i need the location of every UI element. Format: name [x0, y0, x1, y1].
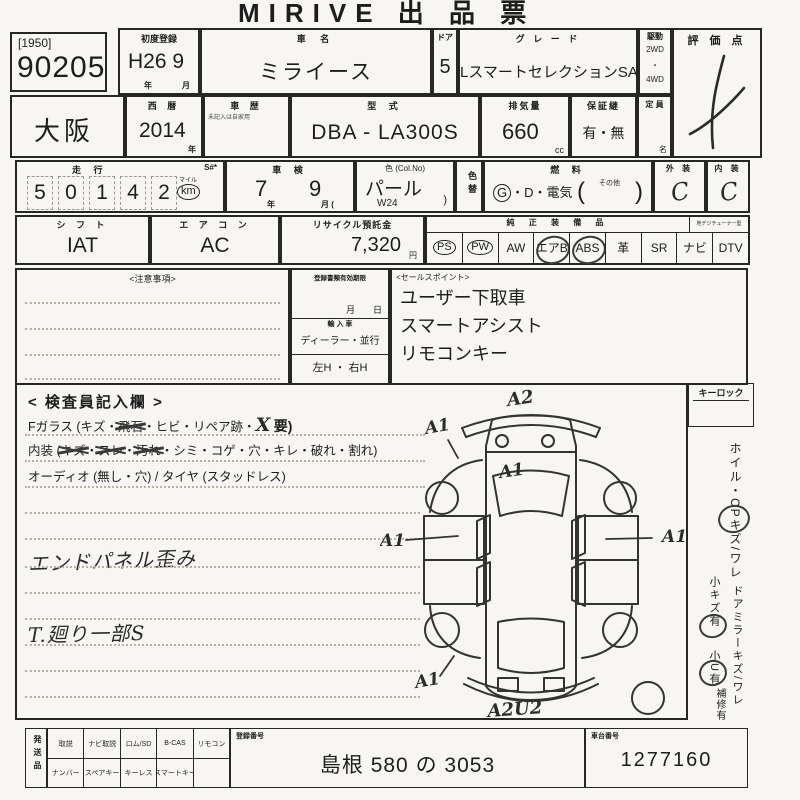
annotation-left: A1 [380, 531, 405, 551]
door-box: ドア 5 [432, 28, 458, 95]
exterior-box: 外 装 C [653, 160, 706, 213]
equipment-item-navi: ナビ [676, 232, 712, 263]
door-value: 5 [434, 56, 456, 79]
fuel-other-label: その他 [599, 178, 620, 188]
first-registration-unit-year: 年 [144, 80, 152, 91]
recycle-deposit-value: 7,320 [351, 234, 401, 257]
inspection-expiry-label: 車 検 [227, 163, 353, 176]
equipment-box: 純 正 装 備 品 地デジチューナー型 PS PW AW エアB ABS 革 S… [425, 215, 750, 265]
fuel-paren-close: ) [635, 178, 643, 206]
keylock-box: キーロック [688, 383, 754, 427]
inspector-dotline-4 [25, 512, 420, 514]
aircon-box: エ ア コ ン AC [150, 215, 280, 265]
lot-number: 90205 [17, 51, 105, 85]
history-note: 未記入は自家用 [208, 112, 250, 121]
chassis-number-box: 車台番号 1277160 [585, 728, 748, 788]
displacement-label: 排気量 [482, 99, 568, 112]
annotation-left-arrow [406, 536, 458, 540]
inspector-dotline-10 [25, 670, 420, 672]
dispatch-item-navi-manual: ナビ取説 [83, 729, 119, 758]
inspector-dotline-3 [25, 486, 425, 488]
year-label: 西 暦 [127, 99, 201, 112]
sales-point-1: ユーザー下取車 [400, 284, 526, 310]
registration-number-box: 登録番号 島根 580 の 3053 [230, 728, 585, 788]
documents-box: 登録書類有効期限 月 日 輸 入 車 ディーラー・並行 左H ・ 右H [290, 268, 390, 385]
first-registration-value: H26 9 [128, 50, 184, 74]
equipment-item-aw: AW [498, 232, 534, 263]
capacity-box: 定 員 名 [637, 95, 672, 158]
exterior-grade-handwritten: C [669, 177, 692, 208]
color-code: W24 [377, 198, 398, 209]
drive-option-2wd: 2WD [640, 45, 670, 54]
recycle-deposit-box: リサイクル預託金 7,320 円 [280, 215, 425, 265]
year-box: 西 暦 2014 年 [125, 95, 203, 158]
model-box: 型 式 DBA - LA300S [290, 95, 480, 158]
shift-value: IAT [17, 234, 148, 258]
equipment-item-abs: ABS [569, 232, 605, 263]
dispatch-item-number-plate: ナンバー [48, 758, 83, 787]
history-box: 車 歴 未記入は自家用 [203, 95, 290, 158]
mirror-text: ドアミラーキズ/ワレ [729, 585, 745, 707]
equipment-item-ps: PS [427, 232, 462, 263]
mileage-s-mark: S#* [204, 163, 217, 172]
inspector-dotline-5 [25, 538, 420, 540]
import-label: 輸 入 車 [292, 319, 388, 329]
recycle-deposit-label: リサイクル預託金 [282, 218, 423, 231]
inspection-expiry-month: 9 [309, 176, 321, 202]
inspector-dotline-7 [25, 592, 420, 594]
annotation-right: A1 [660, 527, 687, 547]
caution-line-4 [25, 378, 280, 380]
mileage-mile-label: マイル [179, 175, 197, 184]
interior-line: 内装 (キズ・スレ・汚れ・シミ・コゲ・穴・キレ・破れ・割れ) [28, 440, 377, 459]
mileage-label: 走 行 [72, 163, 108, 176]
annotation-top-left: A1 [421, 415, 451, 439]
interior-box: 内 装 C [706, 160, 750, 213]
handwritten-note-endpanel: エンドパネル歪み [28, 542, 197, 577]
equipment-item-dtv: DTV [712, 232, 748, 263]
mileage-digit-5: 2 [151, 176, 177, 210]
annotation-right-arrow [606, 538, 652, 539]
interior-struck-yogore: 汚れ [136, 440, 161, 459]
sales-point-3: リモコンキー [400, 340, 508, 366]
annotation-bottomleft-slash [440, 656, 454, 676]
dispatch-item-smart-key: スマートキー [156, 758, 192, 787]
equipment-item-airbag: エアB [533, 232, 569, 263]
interior-struck-kizu: キズ [61, 440, 86, 459]
inspector-dotline-8 [25, 618, 420, 620]
equipment-label: 純 正 装 備 品 [427, 217, 689, 233]
score-box: 評 価 点 [672, 28, 762, 158]
car-name-box: 車 名 ミライース [200, 28, 432, 95]
equipment-tuner-label: 地デジチューナー型 [689, 217, 748, 233]
car-name-label: 車 名 [202, 32, 430, 45]
inspector-dotline-1 [25, 434, 425, 436]
aircon-label: エ ア コ ン [152, 218, 278, 231]
fuel-box: 燃 料 G・D・電気 ( その他 ) [483, 160, 653, 213]
displacement-unit: cc [555, 145, 564, 155]
dispatch-item-keyless: キーレス [120, 758, 156, 787]
color-change-label: 色替 [466, 171, 479, 197]
annotation-bottom: A2U2 [485, 697, 543, 720]
car-diagram: A2 A1 A1 A1 A1 A1 A2U2 [380, 388, 700, 720]
grade-value: LスマートセレクションSA [460, 61, 636, 82]
sales-points-label: <セールスポイント> [396, 272, 469, 283]
model-label: 型 式 [292, 99, 478, 112]
mileage-digit-4: 4 [120, 176, 146, 210]
warranty-value: 有・無 [572, 123, 635, 143]
chassis-number-value: 1277160 [586, 749, 747, 772]
sales-points-box: <セールスポイント> ユーザー下取車 スマートアシスト リモコンキー [390, 268, 748, 385]
fglass-prefix: Fガラス (キズ・ [28, 420, 118, 434]
fuel-paren-open: ( [577, 178, 585, 206]
chassis-number-label: 車台番号 [591, 731, 619, 741]
color-change-box: 色替 [455, 160, 483, 213]
fglass-struck-tobiishi: 飛石 [118, 416, 143, 435]
mileage-digit-2: 0 [58, 176, 84, 210]
lot-bracket: [1950] [18, 36, 51, 50]
import-options: ディーラー・並行 [292, 332, 388, 347]
wheel-kizu-circle-mark [715, 502, 753, 537]
airbag-circle-mark [533, 232, 573, 267]
displacement-box: 排気量 660 cc [480, 95, 570, 158]
auction-sheet: MIRIVE 出 品 票 [1950] 90205 初度登録 H26 9 年 月… [0, 0, 800, 800]
annotation-hood: A1 [496, 460, 526, 484]
doc-expiry-label: 登録書類有効期限 [292, 272, 388, 282]
first-registration-box: 初度登録 H26 9 年 月 [118, 28, 200, 95]
exterior-label: 外 装 [655, 163, 704, 174]
first-registration-unit-month: 月 [182, 80, 190, 91]
audio-line: オーディオ (無し・穴) / タイヤ (スタッドレス) [28, 466, 286, 485]
color-paren: ) [443, 194, 447, 206]
interior-grade-handwritten: C [718, 177, 741, 208]
model-value: DBA - LA300S [292, 121, 478, 145]
inspection-expiry-unit-year: 年 [267, 199, 275, 210]
fglass-x-mark: X [256, 414, 271, 436]
door-label: ドア [434, 32, 456, 43]
year-unit: 年 [188, 144, 196, 155]
displacement-value: 660 [502, 119, 539, 145]
recycle-deposit-unit: 円 [409, 250, 417, 261]
equipment-item-sr: SR [641, 232, 677, 263]
color-label: 色 (Col.No) [357, 163, 453, 174]
warranty-label: 保証継 [572, 99, 635, 112]
fuel-other-types: ・D・電気 [511, 185, 572, 200]
score-handwritten-4 [674, 48, 760, 156]
sheet-title: MIRIVE 出 品 票 [238, 0, 535, 30]
equipment-item-leather: 革 [605, 232, 641, 263]
doc-expiry-units: 月 日 [346, 303, 382, 316]
lot-box: [1950] 90205 [10, 32, 107, 92]
dispatch-label-box: 発送品 [25, 728, 47, 788]
fglass-mid: ・ヒビ・リペア跡・ [143, 420, 256, 434]
mileage-box: 走 行 S#* 50142 マイル km [15, 160, 225, 213]
fuel-label: 燃 料 [485, 163, 651, 176]
caution-label: <注意事項> [17, 272, 288, 285]
interior-prefix: 内装 ( [28, 444, 61, 458]
drive-option-4wd: 4WD [640, 75, 670, 84]
drive-separator: ・ [640, 60, 670, 71]
inspection-expiry-unit-month: 月 ( [321, 199, 334, 210]
caution-line-3 [25, 354, 280, 356]
mileage-km-unit: km [177, 184, 200, 200]
grade-label: グ レ ー ド [460, 32, 636, 45]
mileage-digit-3: 1 [89, 176, 115, 210]
repair-text: 補修有 [712, 688, 727, 721]
annotation-top: A2 [504, 388, 535, 411]
interior-suffix: ・シミ・コゲ・穴・キレ・破れ・割れ) [161, 444, 378, 458]
warranty-box: 保証継 有・無 [570, 95, 637, 158]
region-value: 大阪 [34, 111, 94, 148]
history-label: 車 歴 [205, 99, 288, 112]
fglass-line: Fガラス (キズ・飛石・ヒビ・リペア跡・X 要) [28, 414, 292, 436]
first-registration-label: 初度登録 [120, 32, 198, 45]
caution-line-1 [25, 302, 280, 304]
dispatch-item-manual: 取説 [48, 729, 83, 758]
wheel-small-circle-mark [697, 611, 730, 641]
inspection-expiry-year: 7 [255, 176, 267, 202]
inspector-dotline-6 [25, 566, 420, 568]
interior-label: 内 装 [708, 163, 748, 174]
dispatch-item-rom-sd: ロム/SD [120, 729, 156, 758]
capacity-unit: 名 [659, 144, 667, 155]
caution-line-2 [25, 328, 280, 330]
dispatch-item-empty [193, 758, 229, 787]
fuel-gasoline-circled: G [493, 184, 511, 202]
annotation-topleft-slash [448, 440, 458, 458]
interior-struck-sure: スレ [98, 440, 123, 459]
annotation-bottom-left: A1 [411, 669, 441, 693]
equipment-item-pw: PW [462, 232, 498, 263]
score-label: 評 価 点 [674, 32, 760, 48]
car-name-value: ミライース [202, 56, 430, 86]
color-value: パール [365, 174, 422, 201]
year-value: 2014 [139, 119, 186, 143]
capacity-label: 定 員 [639, 99, 670, 110]
mileage-digit-1: 5 [27, 176, 53, 210]
registration-number-value: 島根 580 の 3053 [231, 749, 584, 779]
fglass-suffix: 要) [274, 418, 293, 434]
grade-box: グ レ ー ド LスマートセレクションSA [458, 28, 638, 95]
abs-circle-mark [569, 232, 609, 267]
dispatch-item-spare-key: スペアキー [83, 758, 119, 787]
dispatch-items-grid: 取説 ナビ取説 ロム/SD B-CAS リモコン ナンバー スペアキー キーレス… [47, 728, 230, 788]
keylock-label: キーロック [689, 386, 753, 399]
shift-label: シ フ ト [17, 218, 148, 231]
mirror-small-circle-mark [696, 657, 729, 689]
drive-label: 駆動 [640, 31, 670, 42]
inspector-title: < 検査員記入欄 > [28, 391, 164, 412]
dispatch-label: 発送品 [32, 735, 43, 774]
caution-box: <注意事項> [15, 268, 290, 385]
aircon-value: AC [152, 234, 278, 258]
handle-options: 左H ・ 右H [292, 359, 388, 375]
region-box: 大阪 [10, 95, 125, 158]
sales-point-2: スマートアシスト [400, 312, 543, 338]
inspection-expiry-box: 車 検 7 9 年 月 ( [225, 160, 355, 213]
dispatch-item-bcas: B-CAS [156, 729, 192, 758]
keylock-divider [693, 400, 749, 401]
inspector-dotline-2 [25, 460, 425, 462]
shift-box: シ フ ト IAT [15, 215, 150, 265]
inspector-dotline-11 [25, 696, 420, 698]
drive-box: 駆動 2WD ・ 4WD [638, 28, 672, 95]
dispatch-item-remote: リモコン [193, 729, 229, 758]
inspector-dotline-9 [25, 644, 420, 646]
color-box: 色 (Col.No) パール W24 ) [355, 160, 455, 213]
registration-number-label: 登録番号 [236, 731, 264, 741]
